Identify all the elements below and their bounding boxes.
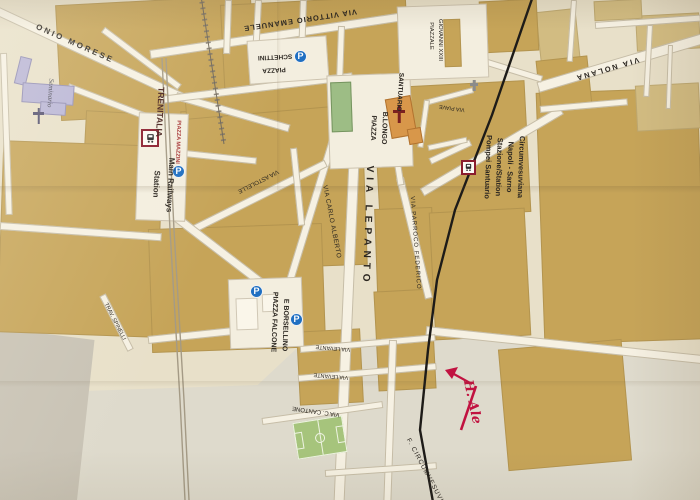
label-circumvesuviana-2: Napoli - Sarno	[505, 141, 514, 192]
city-block	[498, 339, 632, 471]
field-penalty-box	[294, 432, 305, 451]
label-schettini: SCHETTINI	[258, 52, 293, 60]
label-main-railways: Main Railways	[165, 157, 176, 212]
label-circumvesuviana-1: Circumvesuviana	[516, 136, 526, 198]
label-giovanni-xxiii: GIOVANNI XXIII	[436, 19, 442, 61]
label-trenitalia: TRENITALIA	[154, 87, 165, 137]
label-station: Station	[151, 170, 160, 197]
label-seminario: Seminario	[46, 78, 55, 107]
parking-icon: P	[294, 50, 307, 63]
label-piazza-mazzini: PIAZZA MAZZINI	[173, 120, 180, 164]
city-block	[443, 19, 462, 68]
parking-icon: P	[290, 313, 303, 326]
building-outline	[235, 298, 258, 331]
park-green	[330, 82, 353, 133]
label-piazza-blongo-2: B.LONGO	[380, 112, 388, 145]
label-circumvesuviana-4: Pompei Santuario	[483, 135, 493, 199]
label-piazza-schettini: PIAZZA	[262, 65, 286, 73]
santuario-church	[407, 127, 424, 145]
city-block	[594, 0, 643, 21]
label-piazza-blongo-1: PIAZZA	[369, 115, 377, 141]
soccer-field	[292, 415, 347, 459]
church-cross-icon	[33, 108, 44, 124]
label-circumvesuviana-3: Stazione/Station	[494, 138, 504, 197]
circumvesuviana-station-icon	[461, 160, 476, 175]
small-cross-icon	[470, 80, 478, 91]
city-block	[429, 208, 532, 341]
paper-map-photo: P P P P ONIO MORESE Seminario TRENITALIA…	[0, 0, 700, 500]
field-center-circle	[314, 432, 325, 443]
label-piazzale: PIAZZALE	[427, 22, 433, 49]
label-santuario: SANTUARIO	[394, 73, 403, 112]
city-block	[296, 328, 364, 405]
parking-icon: P	[250, 285, 263, 298]
